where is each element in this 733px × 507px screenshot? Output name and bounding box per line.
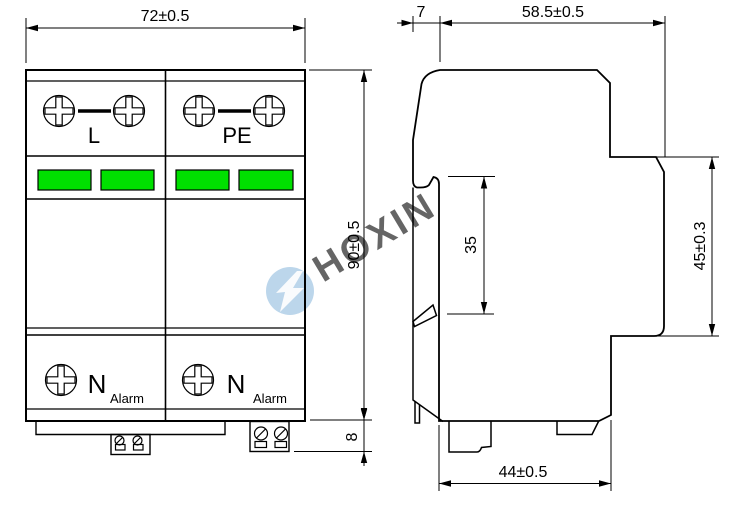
terminal-block-left [111,435,150,455]
watermark-brand-text: HOXIN [306,185,444,291]
screw-terminal-N-right [183,365,214,396]
dim-terminal-height-label: 8 [344,432,361,441]
indicator-green-2 [101,170,154,190]
dim-ledge-and-depth [397,16,665,157]
bottom-step [36,421,225,435]
label-alarm-right: Alarm [253,391,287,406]
label-PE: PE [222,123,251,148]
clip-flap [413,305,437,327]
label-N-right: N [227,369,246,399]
indicator-green-1 [38,170,91,190]
indicator-green-3 [176,170,229,190]
dim-rear-height-label: 45±0.3 [692,221,709,270]
indicator-green-4 [239,170,293,190]
label-alarm-left: Alarm [110,391,144,406]
front-view-labels: L PE N N Alarm Alarm [88,123,287,406]
label-N-left: N [88,369,107,399]
dim-depth-label: 58.5±0.5 [522,4,584,21]
indicator-window-right [176,170,293,190]
dim-din-rail-label: 35 [463,236,480,254]
side-body-outline [413,70,664,421]
terminal-block-right [250,422,289,452]
indicator-window-left [38,170,154,190]
dim-front-width-label: 72±0.5 [141,8,190,25]
clip-pin [415,402,420,424]
dim-base-depth-label: 44±0.5 [499,464,548,481]
screw-terminal-N-left [46,365,77,396]
dim-front-height-label: 90±0.5 [346,220,363,269]
side-foot-right [557,422,599,435]
side-view [413,70,664,452]
side-foot-left [449,422,491,453]
technical-drawing: HOXIN [0,0,733,507]
dim-front-ledge-label: 7 [417,4,426,21]
drawing-svg: HOXIN [0,0,733,507]
label-L: L [88,123,100,148]
